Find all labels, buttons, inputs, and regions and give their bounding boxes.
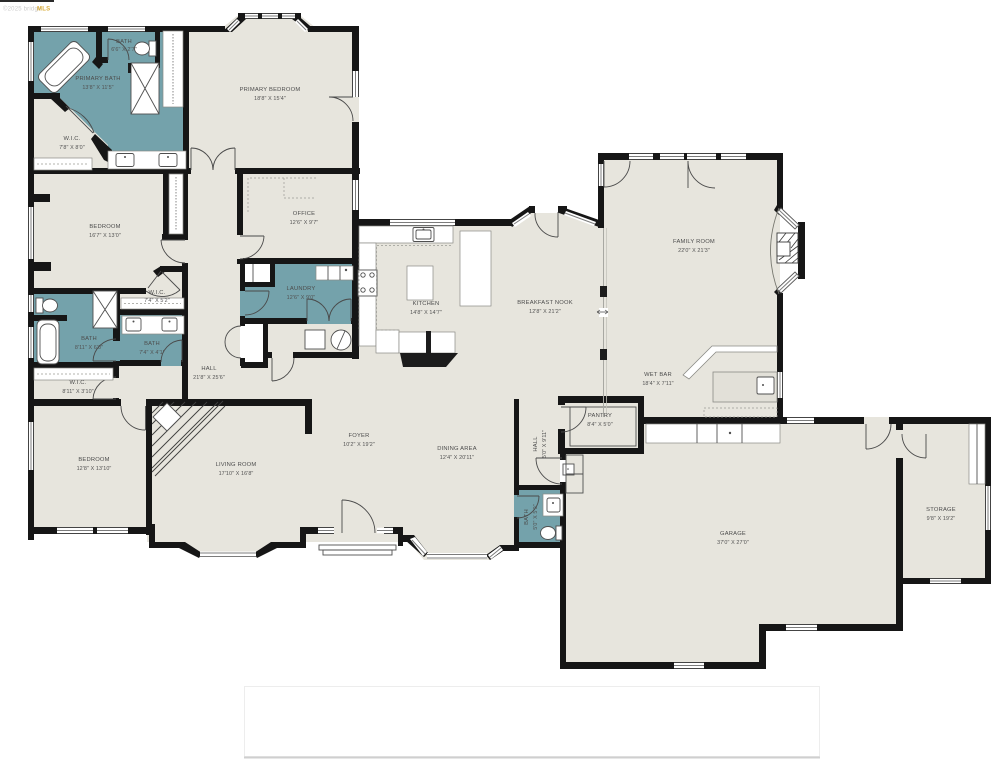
svg-text:W.I.C.: W.I.C. (64, 136, 81, 142)
svg-text:FOYER: FOYER (349, 433, 370, 439)
svg-text:KITCHEN: KITCHEN (413, 301, 440, 307)
svg-text:PANTRY: PANTRY (588, 413, 612, 419)
svg-text:W.I.C.: W.I.C. (149, 290, 166, 296)
svg-text:12'8" X 21'2": 12'8" X 21'2" (529, 309, 561, 315)
svg-text:PRIMARY BATH: PRIMARY BATH (75, 76, 120, 82)
svg-text:OFFICE: OFFICE (293, 211, 315, 217)
svg-text:16'7" X 13'0": 16'7" X 13'0" (89, 233, 121, 239)
svg-text:18'4" X 7'11": 18'4" X 7'11" (642, 381, 673, 387)
svg-text:GARAGE: GARAGE (720, 531, 746, 537)
svg-text:BATH: BATH (524, 509, 530, 525)
svg-text:18'8" X 15'4": 18'8" X 15'4" (254, 96, 286, 102)
svg-text:BATH: BATH (116, 39, 132, 45)
svg-text:MLS: MLS (37, 7, 50, 13)
svg-text:12'8" X 13'10": 12'8" X 13'10" (77, 466, 112, 472)
svg-text:W.I.C.: W.I.C. (70, 380, 87, 386)
svg-text:5'0" X 9'11": 5'0" X 9'11" (542, 430, 548, 458)
svg-text:21'8" X 25'6": 21'8" X 25'6" (193, 375, 225, 381)
svg-text:HALL: HALL (201, 366, 217, 372)
svg-text:HALL: HALL (533, 436, 539, 452)
svg-text:7'4" X 5'2": 7'4" X 5'2" (144, 298, 170, 304)
svg-text:6'6" X 2'7": 6'6" X 2'7" (111, 47, 137, 53)
svg-text:17'10" X 16'8": 17'10" X 16'8" (219, 471, 254, 477)
svg-text:10'2" X 19'2": 10'2" X 19'2" (343, 442, 375, 448)
svg-text:BATH: BATH (81, 336, 97, 342)
svg-text:STORAGE: STORAGE (926, 507, 956, 513)
svg-text:8'11" X 3'10": 8'11" X 3'10" (62, 389, 93, 395)
svg-text:BEDROOM: BEDROOM (89, 224, 120, 230)
svg-text:9'8" X 19'2": 9'8" X 19'2" (927, 516, 956, 522)
svg-text:14'8" X 14'7": 14'8" X 14'7" (410, 310, 442, 316)
svg-text:LAUNDRY: LAUNDRY (287, 286, 316, 292)
svg-text:8'11" X 6'0": 8'11" X 6'0" (75, 345, 103, 351)
svg-text:FAMILY ROOM: FAMILY ROOM (673, 239, 715, 245)
svg-text:BATH: BATH (144, 341, 160, 347)
svg-text:DINING AREA: DINING AREA (437, 446, 477, 452)
svg-text:BREAKFAST NOOK: BREAKFAST NOOK (517, 300, 573, 306)
svg-text:12'6" X 9'7": 12'6" X 9'7" (290, 220, 319, 226)
svg-text:7'8" X 8'0": 7'8" X 8'0" (59, 145, 85, 151)
svg-text:LIVING ROOM: LIVING ROOM (216, 462, 257, 468)
svg-text:BEDROOM: BEDROOM (78, 457, 109, 463)
svg-text:PRIMARY BEDROOM: PRIMARY BEDROOM (240, 87, 301, 93)
svg-text:22'0" X 21'3": 22'0" X 21'3" (678, 248, 710, 254)
svg-text:7'4" X 4'1": 7'4" X 4'1" (139, 350, 165, 356)
svg-text:37'0" X 27'0": 37'0" X 27'0" (717, 540, 749, 546)
svg-text:5'0" X 5'9": 5'0" X 5'9" (533, 504, 539, 530)
svg-text:13'8" X 11'5": 13'8" X 11'5" (82, 85, 113, 91)
svg-text:12'6" X 9'0": 12'6" X 9'0" (287, 295, 316, 301)
svg-text:WET BAR: WET BAR (644, 372, 672, 378)
svg-text:12'4" X 20'11": 12'4" X 20'11" (440, 455, 474, 461)
svg-text:8'4" X 5'0": 8'4" X 5'0" (587, 422, 613, 428)
